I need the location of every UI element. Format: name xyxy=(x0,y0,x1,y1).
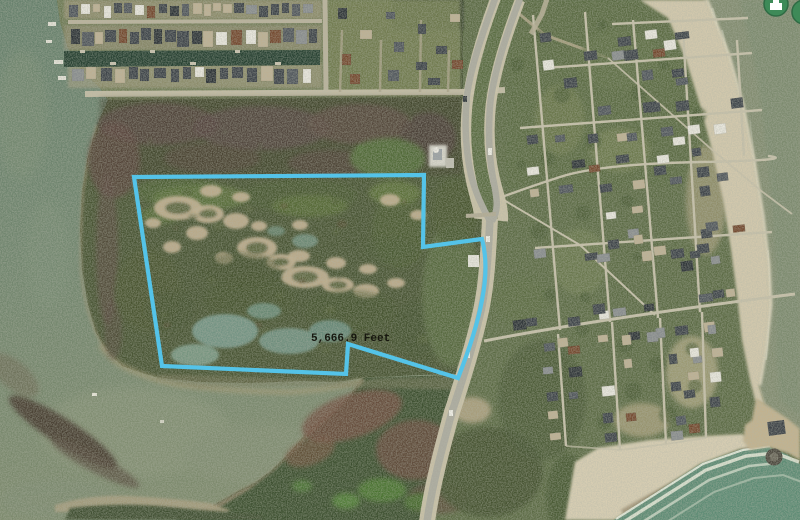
svg-text:5,666.9 Feet: 5,666.9 Feet xyxy=(311,333,390,345)
